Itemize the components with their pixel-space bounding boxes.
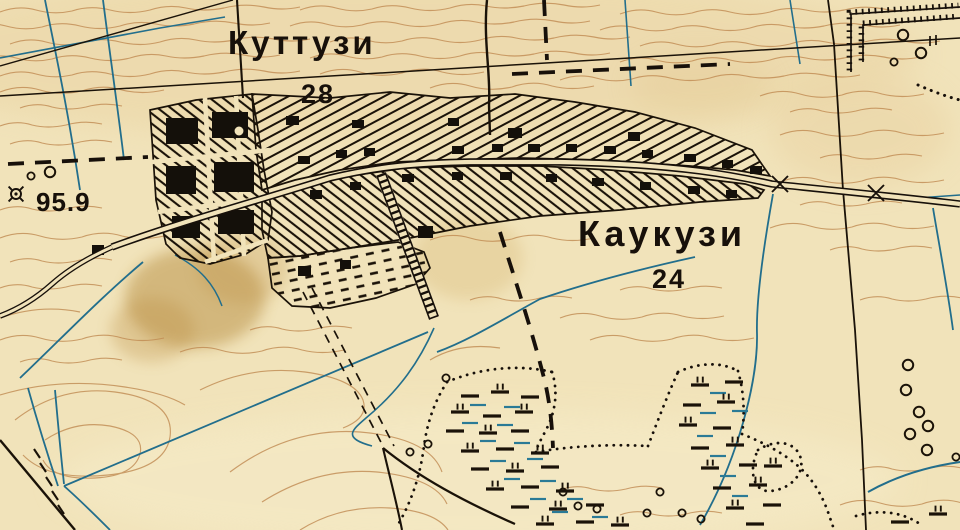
map-canvas: 95.9 Куттузи 28 Каукузи 24 (0, 0, 960, 530)
geodetic-point-icon (9, 187, 24, 202)
topographic-map: 95.9 Куттузи 28 Каукузи 24 (0, 0, 960, 530)
church-circle (234, 126, 245, 137)
settlement-name-kuttuzi: Куттузи (228, 24, 376, 61)
households-kaukuzi: 24 (652, 264, 686, 294)
elevation-label: 95.9 (36, 187, 91, 217)
settlement-name-kaukuzi: Каукузи (578, 213, 746, 254)
paper-background (0, 0, 960, 530)
households-kuttuzi: 28 (301, 79, 335, 109)
